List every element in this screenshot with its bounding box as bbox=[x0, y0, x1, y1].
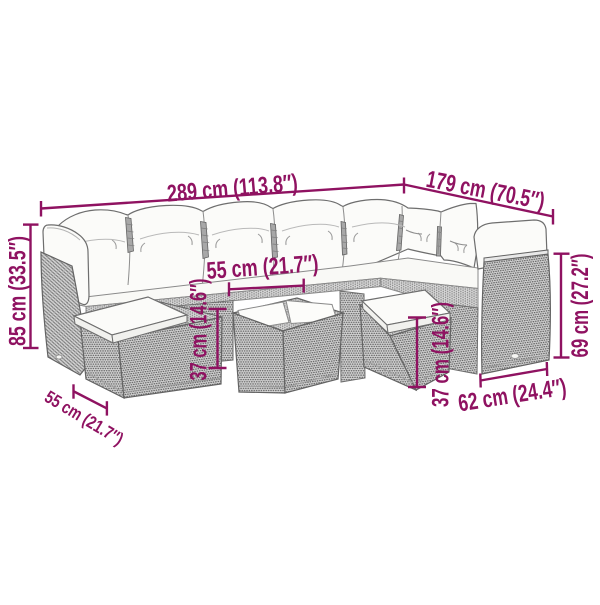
svg-text:37 cm (14.6″): 37 cm (14.6″) bbox=[428, 302, 455, 407]
svg-text:37 cm (14.6″): 37 cm (14.6″) bbox=[186, 279, 213, 381]
svg-text:69 cm (27.2″): 69 cm (27.2″) bbox=[567, 254, 594, 358]
svg-text:85 cm (33.5″): 85 cm (33.5″) bbox=[5, 236, 32, 346]
